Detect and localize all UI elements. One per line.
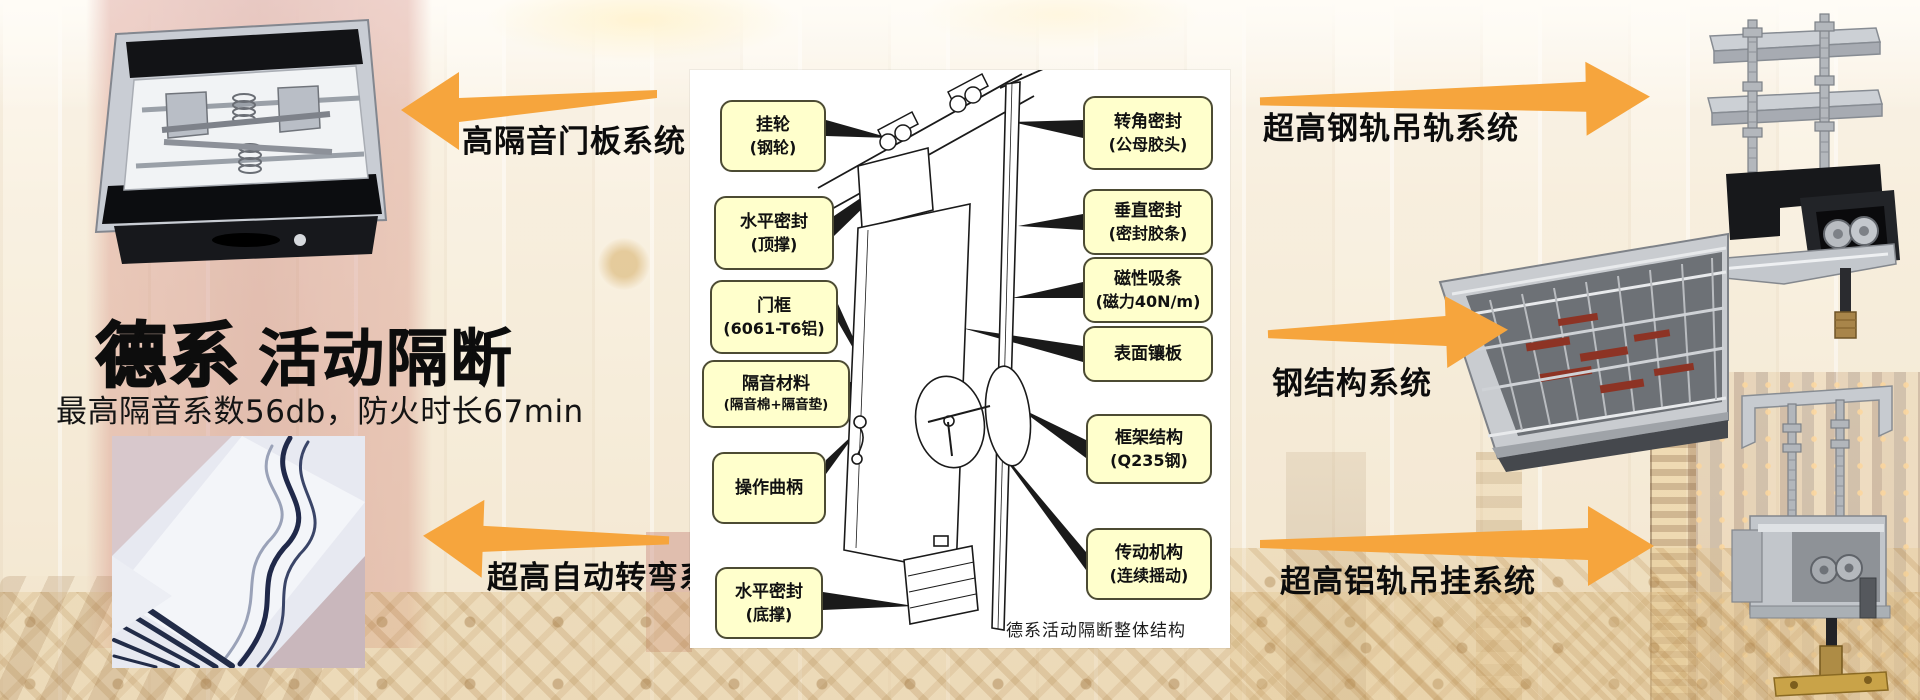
callout-line: (钢轮) — [750, 137, 797, 159]
callout-line: 传动机构 — [1115, 542, 1183, 565]
aluminum-rail-hanger-photo — [1722, 380, 1914, 698]
callout-crank-handle: 操作曲柄 — [712, 452, 826, 524]
page-subtitle: 最高隔音系数56db，防火时长67min — [56, 386, 584, 431]
callout-line: 隔音材料 — [742, 373, 810, 396]
door-panel-mechanism-photo — [78, 2, 408, 284]
callout-corner-seal: 转角密封 (公母胶头) — [1083, 96, 1213, 170]
diagram-caption: 德系活动隔断整体结构 — [1006, 616, 1221, 641]
callout-magnetic-strip: 磁性吸条 (磁力40N/m) — [1083, 257, 1213, 323]
callout-frame-structure: 框架结构 (Q235钢) — [1086, 414, 1212, 484]
callout-line: 水平密封 — [735, 581, 803, 604]
callout-horizontal-seal-top: 水平密封 (顶撑) — [714, 196, 834, 270]
callout-line: (公母胶头) — [1109, 134, 1188, 156]
callout-sound-insulation: 隔音材料 (隔音棉+隔音垫) — [702, 360, 850, 428]
callout-surface-panel: 表面镶板 — [1083, 326, 1213, 382]
callout-line: (Q235钢) — [1110, 450, 1188, 472]
callout-line: (隔音棉+隔音垫) — [724, 396, 829, 414]
callout-line: 垂直密封 — [1114, 200, 1182, 223]
callout-line: (磁力40N/m) — [1096, 291, 1201, 313]
callout-line: (连续摇动) — [1110, 565, 1189, 587]
diagram-panel: 挂轮 (钢轮) 水平密封 (顶撑) 门框 (6061-T6铝) 隔音材料 (隔音… — [690, 70, 1230, 648]
callout-line: 挂轮 — [756, 114, 790, 137]
callout-line: (6061-T6铝) — [723, 318, 825, 340]
callout-line: (密封胶条) — [1109, 223, 1188, 245]
callout-line: 转角密封 — [1114, 111, 1182, 134]
callout-line: (顶撑) — [751, 234, 798, 256]
callout-line: 操作曲柄 — [735, 477, 803, 500]
callout-drive-mechanism: 传动机构 (连续摇动) — [1086, 528, 1212, 600]
label-alu-rail-system: 超高铝轨吊挂系统 — [1280, 556, 1536, 601]
callout-line: 表面镶板 — [1114, 343, 1182, 366]
callout-line: 磁性吸条 — [1114, 268, 1182, 291]
callout-horizontal-seal-bottom: 水平密封 (底撑) — [715, 567, 823, 639]
callout-line: 框架结构 — [1115, 427, 1183, 450]
slide: 高隔音门板系统 超高自动转弯系统 超高钢轨吊轨系统 钢结构系统 超高铝轨吊挂系统… — [0, 0, 1920, 700]
callout-line: 水平密封 — [740, 211, 808, 234]
label-steel-structure-system: 钢结构系统 — [1272, 358, 1432, 403]
callout-hanger-wheel: 挂轮 (钢轮) — [720, 100, 826, 172]
callout-line: (底撑) — [746, 604, 793, 626]
curved-track-photo — [112, 436, 365, 668]
page-title-product: 活动隔断 — [258, 308, 514, 398]
callout-door-frame: 门框 (6061-T6铝) — [710, 280, 838, 354]
callout-line: 门框 — [757, 295, 791, 318]
callout-vertical-seal: 垂直密封 (密封胶条) — [1083, 189, 1213, 255]
label-door-panel-system: 高隔音门板系统 — [462, 116, 686, 161]
label-steel-rail-system: 超高钢轨吊轨系统 — [1263, 103, 1519, 148]
